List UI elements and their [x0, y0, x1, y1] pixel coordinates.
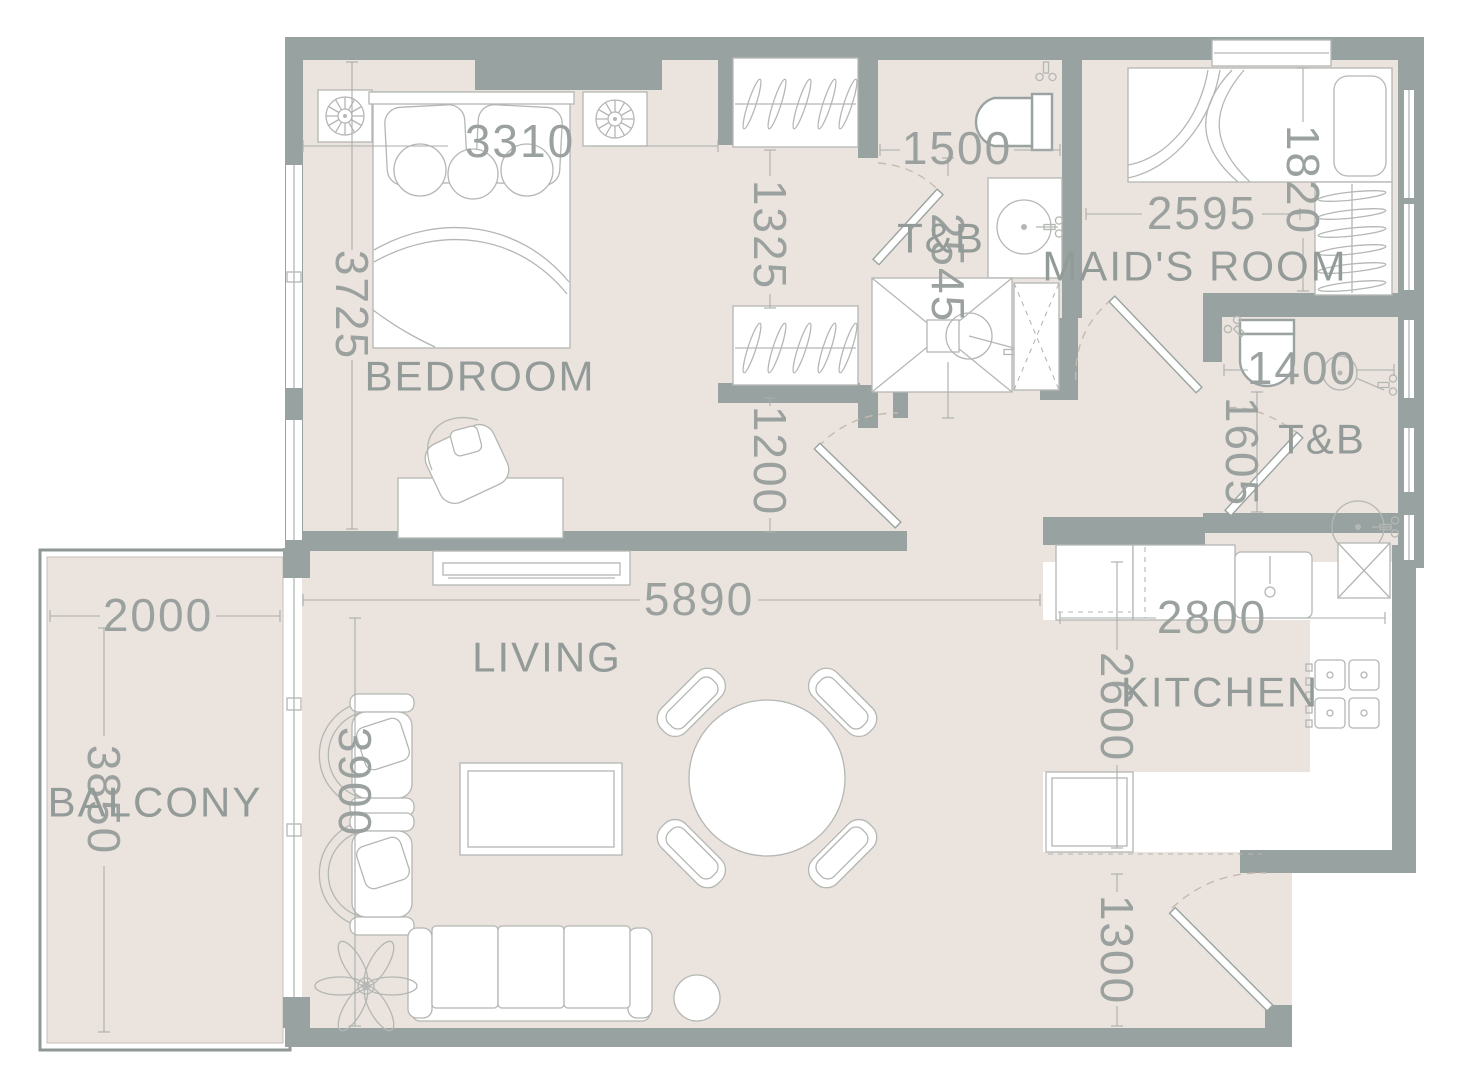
label-bath-maids: T&B	[1278, 416, 1366, 463]
bedroom-window	[286, 165, 302, 540]
dim-bath-ma-width: 1400	[1247, 342, 1357, 394]
dim-bedroom-depth: 3725	[326, 250, 378, 360]
ceiling-lamp-icon	[326, 97, 364, 135]
dim-living-width: 5890	[644, 573, 754, 625]
balcony-sliding-door	[286, 578, 302, 997]
maids-headboard-niche	[1212, 40, 1331, 66]
dim-maids-width: 2595	[1147, 187, 1257, 239]
dim-bath-main-width: 1500	[902, 122, 1012, 174]
floor-plan: 3310 3725 1500 2545 1325 1200 2595 1820 …	[0, 0, 1459, 1080]
wardrobe-upper	[733, 58, 860, 147]
label-living: LIVING	[472, 634, 622, 681]
label-kitchen: KITCHEN	[1121, 669, 1319, 716]
label-balcony: BALCONY	[48, 779, 263, 826]
washer	[1338, 543, 1390, 598]
label-maids-room: MAID'S ROOM	[1042, 243, 1347, 290]
stool	[674, 975, 720, 1021]
dim-closet-upper: 1325	[744, 180, 796, 290]
island-counter	[1046, 772, 1133, 852]
coffee-table	[460, 763, 622, 855]
dim-closet-lower: 1200	[744, 406, 796, 516]
dim-balcony-width: 2000	[103, 589, 213, 641]
sofa	[408, 926, 652, 1021]
wardrobe-lower	[733, 306, 860, 385]
fridge	[1056, 545, 1133, 620]
dim-living-depth: 3900	[329, 727, 381, 837]
dim-kitchen-width: 2800	[1157, 591, 1267, 643]
ceiling-lamp-icon	[596, 100, 634, 138]
right-wall-windows	[1404, 90, 1414, 560]
single-bed	[1128, 68, 1392, 182]
dim-bath-ma-depth: 1605	[1216, 397, 1268, 507]
tv-console	[433, 551, 630, 585]
label-bath-main: T&B	[897, 215, 985, 262]
label-bedroom: BEDROOM	[364, 353, 595, 400]
utility-closet	[1014, 283, 1059, 390]
dim-maids-depth: 1820	[1277, 125, 1329, 235]
dim-entry-depth: 1300	[1091, 895, 1143, 1005]
dim-bedroom-width: 3310	[465, 115, 575, 167]
